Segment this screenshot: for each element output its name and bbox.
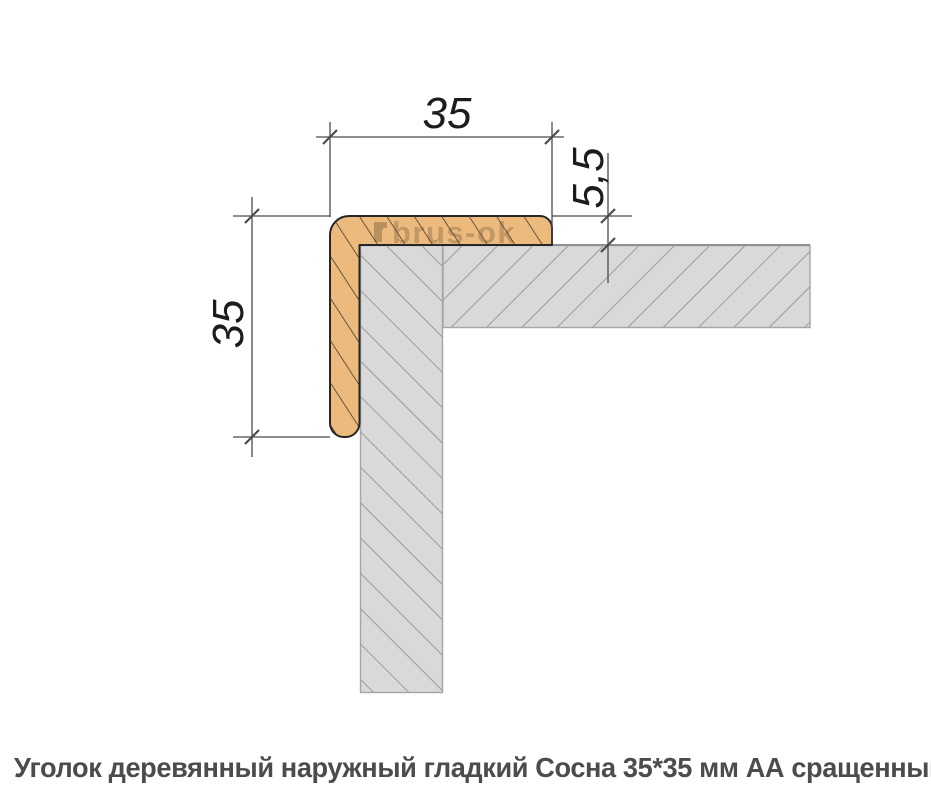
dim-label-top-width: 35 xyxy=(423,89,472,138)
watermark-text: brus-ok xyxy=(392,215,516,250)
dim-label-leg-thickness: 5,5 xyxy=(564,147,613,209)
wall-section xyxy=(361,245,811,693)
product-drawing-page: brus-ok 35 5,5 35 Уголок дерев xyxy=(0,0,931,800)
watermark: brus-ok xyxy=(374,215,516,250)
wall-horizontal-hatch xyxy=(443,246,810,328)
dim-label-left-height: 35 xyxy=(204,299,253,348)
corner-trim-diagram: brus-ok 35 5,5 35 xyxy=(0,0,931,745)
wall-vertical-hatch xyxy=(361,246,443,693)
product-caption: Уголок деревянный наружный гладкий Сосна… xyxy=(14,752,917,784)
